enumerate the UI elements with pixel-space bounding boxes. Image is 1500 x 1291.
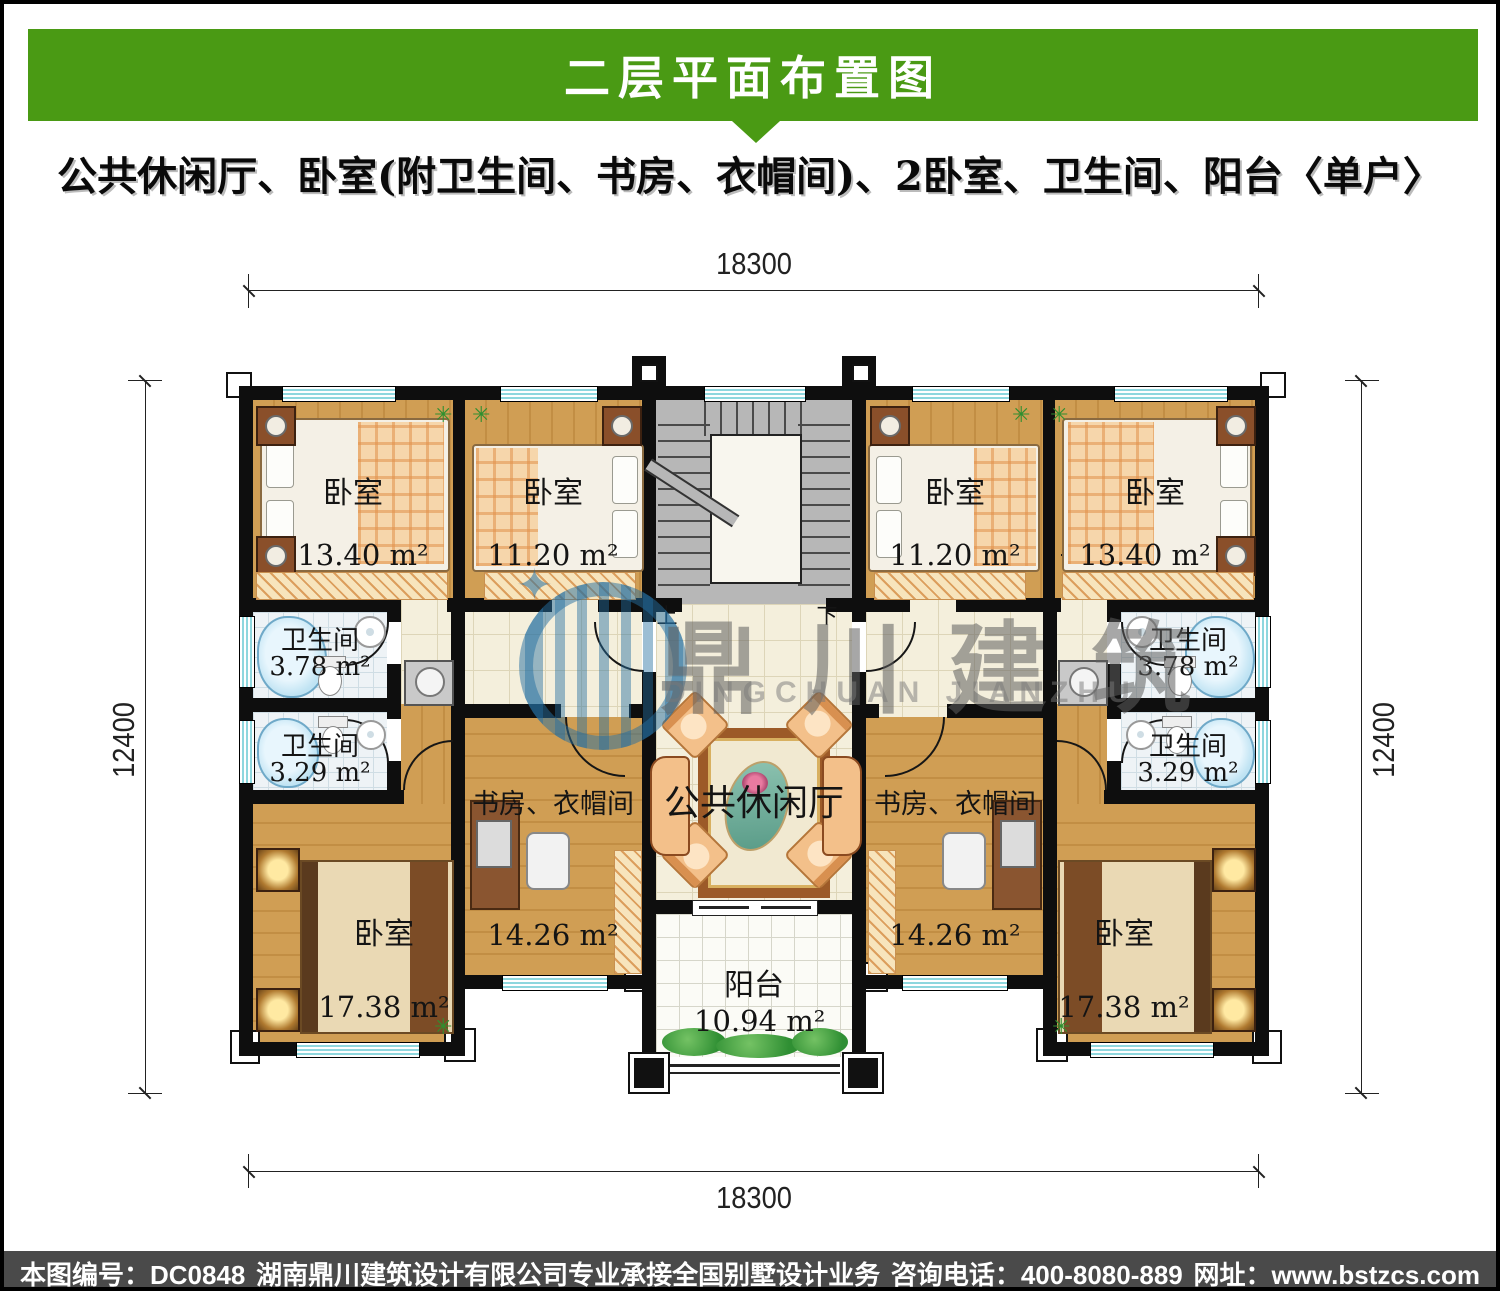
balcony-sliding-door xyxy=(692,900,818,916)
wall xyxy=(253,598,401,612)
window xyxy=(500,386,598,402)
nightstand xyxy=(602,406,642,446)
dim-bottom-value: 18300 xyxy=(666,1180,842,1216)
wall xyxy=(852,914,866,1057)
room-label: 卧室 xyxy=(1085,468,1225,512)
wall xyxy=(1107,598,1255,612)
wall xyxy=(1104,790,1255,804)
room-label: 卧室 xyxy=(483,468,623,512)
computer-icon xyxy=(476,820,512,868)
room-area: 3.29 m² xyxy=(1123,758,1253,788)
nightstand xyxy=(256,536,296,576)
page: 二层平面布置图 公共休闲厅、卧室(附卫生间、书房、衣帽间)、2卧室、卫生间、阳台… xyxy=(0,0,1500,1291)
room-area: 13.40 m² xyxy=(1075,538,1215,572)
wall xyxy=(1107,698,1255,712)
wall xyxy=(451,704,561,718)
balcony-column xyxy=(842,1052,884,1094)
chair xyxy=(942,832,986,890)
room-area: 3.78 m² xyxy=(255,652,385,682)
wall xyxy=(852,386,866,622)
plant-icon: ✳ xyxy=(434,404,452,426)
stair-treads xyxy=(658,424,710,596)
window xyxy=(1090,1042,1214,1058)
wardrobe xyxy=(614,850,642,974)
title-banner: 二层平面布置图 xyxy=(28,29,1478,121)
nightstand-lamp xyxy=(256,848,300,892)
page-title: 二层平面布置图 xyxy=(564,42,942,108)
wall xyxy=(1043,598,1057,1056)
wall xyxy=(598,598,642,612)
window xyxy=(1255,616,1271,688)
stair-treads xyxy=(798,424,850,596)
stair-treads xyxy=(704,402,804,436)
room-area: 14.26 m² xyxy=(463,918,643,952)
window xyxy=(902,975,1008,991)
stub-door xyxy=(640,364,658,382)
wall xyxy=(1107,612,1121,622)
room-area: 3.29 m² xyxy=(255,758,385,788)
washing-machine-icon xyxy=(1058,660,1108,706)
window xyxy=(912,386,1010,402)
wall xyxy=(253,790,404,804)
stair-down-label: 下 xyxy=(814,600,840,630)
room-label: 卧室 xyxy=(1074,909,1174,953)
window xyxy=(1114,386,1228,402)
window xyxy=(239,616,255,688)
room-area: 10.94 m² xyxy=(694,1004,814,1038)
wall xyxy=(642,900,694,914)
wardrobe xyxy=(874,572,1026,600)
window xyxy=(282,386,396,402)
nightstand xyxy=(1216,536,1256,576)
plan-subtitle: 公共休闲厅、卧室(附卫生间、书房、衣帽间)、2卧室、卫生间、阳台〈单户〉 xyxy=(4,144,1496,202)
room-area: 3.78 m² xyxy=(1123,652,1253,682)
room-area: 11.20 m² xyxy=(483,538,623,572)
footer-website: 网址：www.bstzcs.com xyxy=(1193,1255,1480,1291)
stub-door xyxy=(852,364,870,382)
wall xyxy=(852,704,879,718)
plant-icon: ✳ xyxy=(1012,404,1030,426)
room-area: 17.38 m² xyxy=(1044,990,1204,1024)
dim-right-value: 12400 xyxy=(1366,687,1402,793)
wall xyxy=(253,698,401,712)
room-label: 卧室 xyxy=(334,909,434,953)
nightstand xyxy=(870,406,910,446)
wardrobe xyxy=(868,850,896,974)
plant-icon: ✳ xyxy=(1050,404,1068,426)
room-area: 13.40 m² xyxy=(293,538,433,572)
room-label: 卧室 xyxy=(283,468,423,512)
wall xyxy=(814,900,866,914)
nightstand-lamp xyxy=(1212,848,1256,892)
plant-icon: ✳ xyxy=(472,404,490,426)
wardrobe xyxy=(484,572,636,600)
room-label: 卧室 xyxy=(885,468,1025,512)
wall xyxy=(866,598,910,612)
footer-phone: 咨询电话：400-8080-889 xyxy=(891,1255,1183,1291)
nightstand-lamp xyxy=(1212,988,1256,1032)
room-area: 11.20 m² xyxy=(885,538,1025,572)
footer-company: 湖南鼎川建筑设计有限公司专业承接全国别墅设计业务 xyxy=(256,1255,880,1291)
computer-icon xyxy=(1000,820,1036,868)
nightstand xyxy=(256,406,296,446)
stair-up-label: 上 xyxy=(654,600,680,630)
room-label: 书房、衣帽间 xyxy=(463,782,643,821)
room-label: 公共休闲厅 xyxy=(656,774,852,826)
window xyxy=(502,975,608,991)
wardrobe xyxy=(256,572,448,600)
wall xyxy=(453,400,465,598)
wall xyxy=(629,704,656,718)
banner-pointer-triangle xyxy=(732,121,780,143)
washing-machine-icon xyxy=(404,660,454,706)
wall xyxy=(387,612,401,622)
wall xyxy=(642,386,656,622)
room-area: 17.38 m² xyxy=(304,990,464,1024)
footer-bar: 本图编号：DC0848 湖南鼎川建筑设计有限公司专业承接全国别墅设计业务 咨询电… xyxy=(4,1251,1496,1291)
wardrobe xyxy=(1062,572,1254,600)
dim-left-value: 12400 xyxy=(106,687,142,793)
balcony-column xyxy=(628,1052,670,1094)
chair xyxy=(526,832,570,890)
wall xyxy=(947,704,1057,718)
footer-drawing-number: 本图编号：DC0848 xyxy=(20,1255,245,1291)
window xyxy=(704,386,806,402)
balcony-rail xyxy=(668,1064,840,1067)
window xyxy=(1255,720,1271,784)
room-label: 阳台 xyxy=(704,960,804,1004)
window xyxy=(239,720,255,784)
balcony-rail xyxy=(668,1072,840,1074)
nightstand xyxy=(1216,406,1256,446)
wall xyxy=(642,914,656,1057)
window xyxy=(296,1042,420,1058)
room-area: 14.26 m² xyxy=(865,918,1045,952)
nightstand-lamp xyxy=(256,988,300,1032)
wall xyxy=(1043,400,1055,598)
room-label: 书房、衣帽间 xyxy=(865,782,1045,821)
dim-top-value: 18300 xyxy=(666,246,842,282)
